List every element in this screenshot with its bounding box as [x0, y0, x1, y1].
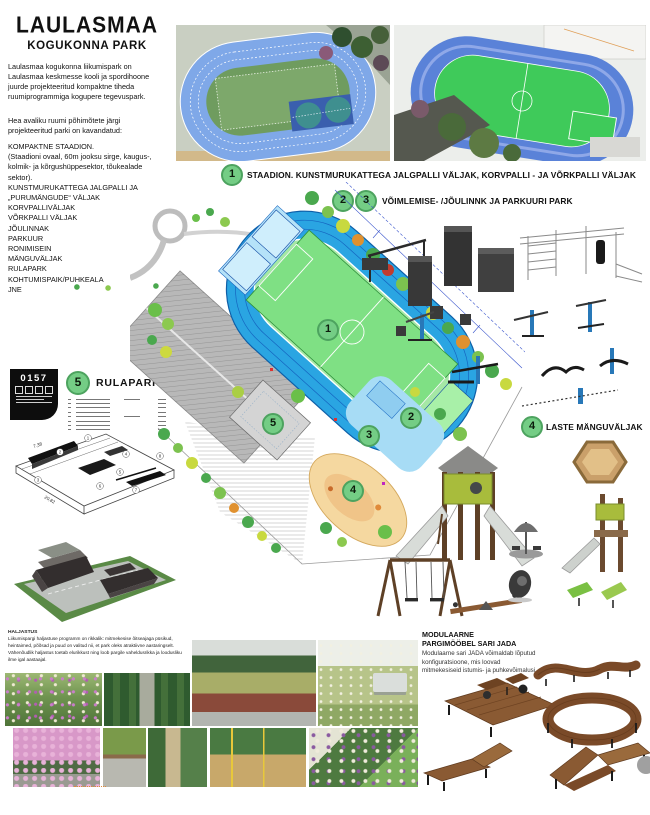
badge-logo-icons [10, 386, 58, 394]
spring-riders [567, 582, 627, 608]
section-5-number: 5 [66, 371, 90, 395]
badge-text-line [16, 399, 44, 400]
greening-note: HALJASTUS Liikumispargi haljastuse progr… [8, 629, 186, 663]
list-item: KOMPAKTNE STAADION. [8, 142, 168, 152]
dotted-divider [74, 786, 106, 789]
intro-paragraph-1: Laulasmaa kogukonna liikumispark on Laul… [8, 62, 166, 102]
project-code-badge: 0157 [10, 369, 58, 420]
swing-set [378, 560, 462, 616]
photo-hammock-playground [210, 728, 306, 787]
plan-marker-1: 1 [317, 319, 339, 341]
poster-sheet: LAULASMAA KOGUKONNA PARK Laulasmaa koguk… [0, 0, 650, 815]
fitness-equipment-renders [360, 218, 648, 408]
photo-green-roof [103, 728, 146, 787]
ramps [28, 441, 166, 486]
greening-title: HALJASTUS [8, 630, 37, 635]
hexagon-sandbox [574, 442, 626, 482]
pouf-seat [637, 756, 650, 774]
calisthenics-frame [520, 226, 642, 282]
section-1-heading: STAADION. KUNSTMURUKATTEGA JALGPALLI VÄL… [247, 170, 636, 180]
small-play-tower [562, 494, 628, 573]
bench-in-photo [373, 673, 407, 692]
photo-blossom-path [13, 728, 100, 787]
aerial-render-stadium-2 [394, 25, 646, 161]
page-title: LAULASMAA [6, 13, 168, 40]
skatepark-render [8, 528, 180, 628]
badge-text-line [16, 402, 52, 403]
badge-text-line [16, 396, 52, 397]
page-subtitle: KOGUKONNA PARK [6, 40, 168, 52]
photo-wildflower-meadow [5, 673, 102, 726]
photo-tree-allee [104, 673, 190, 726]
s-curve-bench [538, 665, 636, 686]
platform-bench [445, 673, 555, 737]
plan-marker-4: 4 [342, 480, 364, 502]
furniture-renders [412, 645, 650, 813]
ring-bench [548, 698, 636, 748]
plan-marker-2: 2 [400, 407, 422, 429]
photo-bench-meadow [318, 640, 418, 726]
photo-street-planting [192, 640, 316, 726]
photo-gravel-path [148, 728, 207, 787]
egg-spinner [506, 568, 533, 602]
plan-marker-5: 5 [262, 413, 284, 435]
lounger-bench [424, 743, 512, 791]
double-lounger [550, 743, 650, 791]
section-4-heading: LASTE MÄNGUVÄLJAK [546, 422, 643, 432]
parkour-blocks [362, 226, 514, 336]
aerial-render-stadium-1 [176, 25, 390, 161]
photo-flower-border [309, 728, 418, 787]
project-code: 0157 [10, 373, 58, 384]
intro-paragraph-2: Hea avaliku ruumi põhimõtete järgi proje… [8, 116, 166, 136]
list-item: (Staadioni ovaal, 60m jooksu sirge, kaug… [8, 152, 168, 183]
skatepark-drawing: 1 2 3 4 5 6 7 8 7,38 20,82 [8, 428, 180, 528]
dim-width: 7,38 [33, 441, 44, 449]
greening-body: Liikumispargi haljastuse programm on rik… [8, 636, 182, 661]
playground-renders [368, 432, 648, 632]
